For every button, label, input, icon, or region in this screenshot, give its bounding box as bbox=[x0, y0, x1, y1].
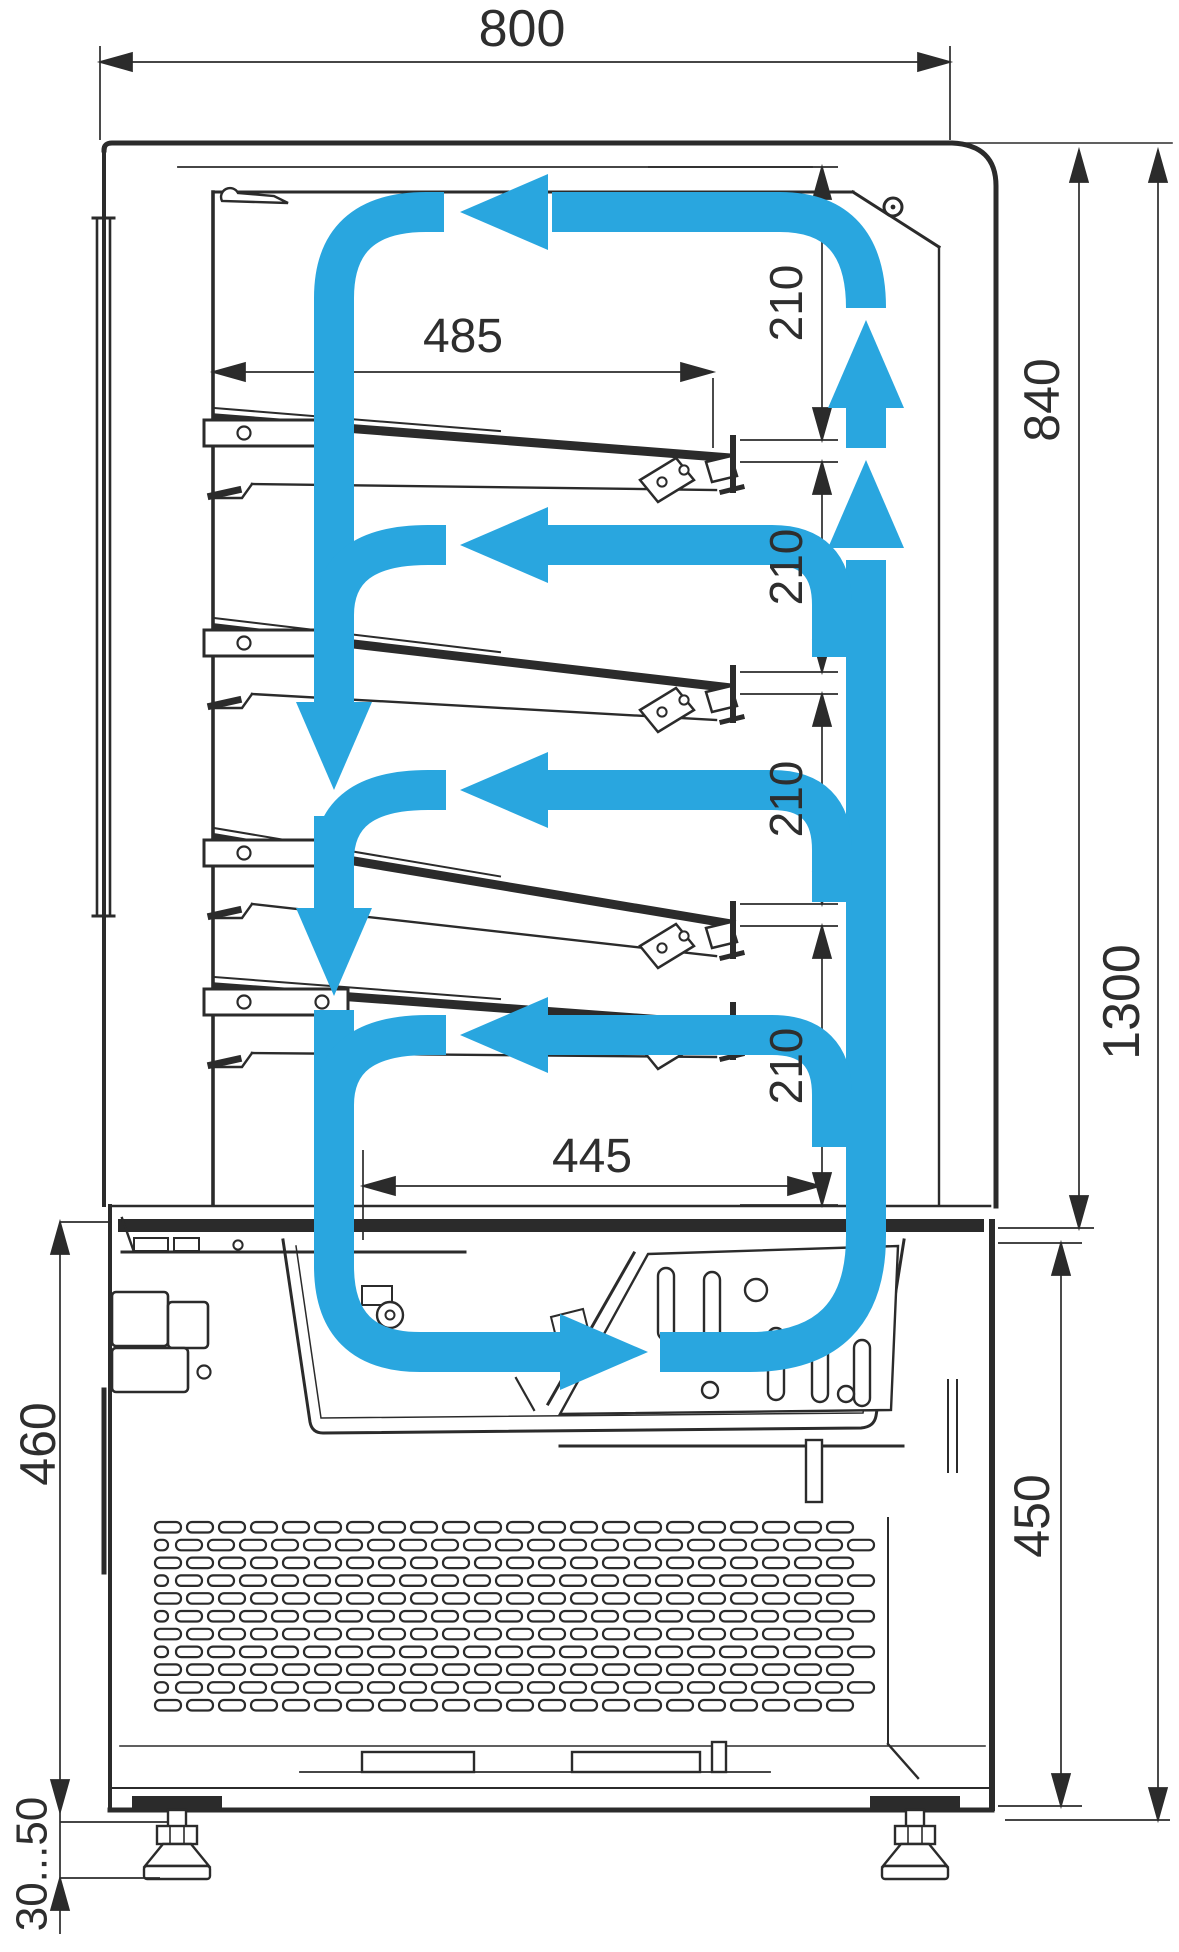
dim-gap-4-label: 210 bbox=[760, 1028, 812, 1105]
screw-icon bbox=[679, 465, 688, 474]
screw-icon bbox=[657, 943, 666, 952]
dim-gap-3-label: 210 bbox=[760, 761, 812, 838]
dim-bottom-shelf-length-label: 445 bbox=[552, 1130, 632, 1183]
screw-icon bbox=[657, 707, 666, 716]
shelf-3 bbox=[204, 828, 742, 968]
screw-icon bbox=[238, 847, 251, 860]
screw-icon bbox=[238, 427, 251, 440]
arrow-left-icon bbox=[460, 507, 548, 583]
screw-icon bbox=[238, 996, 251, 1009]
screw-icon bbox=[679, 695, 688, 704]
cabinet-structure bbox=[93, 143, 1172, 1879]
technical-drawing: 800 485 445 210 210 210 210 840 1300 450… bbox=[0, 0, 1179, 1952]
airflow-loop bbox=[296, 174, 904, 1390]
shelf-1 bbox=[204, 408, 742, 502]
arrow-left-icon bbox=[460, 174, 548, 250]
shelf-2 bbox=[204, 618, 742, 732]
dim-case-height bbox=[998, 150, 1094, 1228]
screw-icon bbox=[238, 637, 251, 650]
adjustable-foot-1 bbox=[132, 1796, 222, 1879]
screw-icon bbox=[657, 477, 666, 486]
airflow-branch-3-merge bbox=[334, 1035, 446, 1105]
drain-pipe bbox=[806, 1440, 822, 1502]
airflow-branch-2-merge bbox=[334, 790, 446, 860]
lamp-detail bbox=[221, 188, 288, 203]
display-case-section-diagram: 800 485 445 210 210 210 210 840 1300 450… bbox=[0, 0, 1179, 1952]
dim-overall-height-label: 1300 bbox=[1093, 944, 1151, 1060]
dim-base-height-right-label: 450 bbox=[1004, 1474, 1060, 1557]
arrow-up-icon bbox=[828, 460, 904, 548]
dim-overall-width bbox=[100, 46, 950, 140]
arrow-down-icon bbox=[296, 702, 372, 790]
arrow-left-icon bbox=[460, 752, 548, 828]
dim-legs-adjustment-label: 30...50 bbox=[8, 1797, 57, 1932]
dim-overall-width-label: 800 bbox=[479, 0, 566, 58]
dim-shelf-length-label: 485 bbox=[423, 310, 503, 363]
shelves bbox=[204, 408, 742, 1069]
dim-base-height-left-label: 460 bbox=[10, 1402, 66, 1485]
dim-gap-2-label: 210 bbox=[760, 529, 812, 606]
dim-gap-1-label: 210 bbox=[760, 265, 812, 342]
screw-icon bbox=[679, 931, 688, 940]
arrow-down-icon bbox=[296, 908, 372, 996]
airflow-branch-1-merge bbox=[334, 545, 446, 615]
airflow-top-run bbox=[552, 212, 866, 308]
ventilation-grille bbox=[155, 1522, 874, 1711]
dim-case-height-label: 840 bbox=[1014, 358, 1070, 441]
dimension-labels: 800 485 445 210 210 210 210 840 1300 450… bbox=[8, 0, 1152, 1931]
screw-icon bbox=[316, 996, 329, 1009]
compressor bbox=[112, 1292, 211, 1392]
arrow-up-icon bbox=[828, 320, 904, 408]
airflow-left-channel-1 bbox=[334, 212, 444, 702]
adjustable-foot-2 bbox=[870, 1796, 960, 1879]
